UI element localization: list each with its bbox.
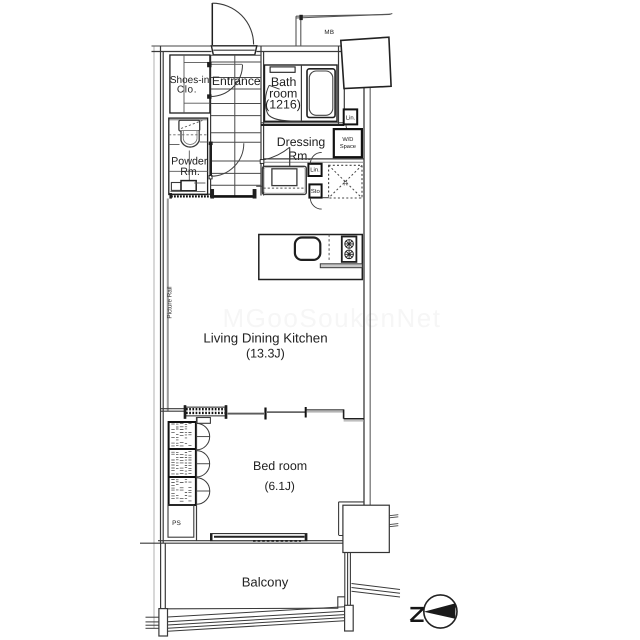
svg-text:Balcony: Balcony	[242, 575, 289, 590]
svg-text:Entrance: Entrance	[212, 74, 261, 88]
svg-text:Lin.: Lin.	[310, 167, 320, 174]
svg-text:(1216): (1216)	[265, 98, 301, 112]
svg-text:(6.1J): (6.1J)	[264, 479, 294, 493]
svg-text:MGooSoukenNet: MGooSoukenNet	[223, 303, 442, 333]
svg-text:(13.3J): (13.3J)	[246, 347, 285, 361]
svg-text:Space: Space	[340, 144, 356, 150]
svg-text:Sto: Sto	[311, 188, 321, 195]
svg-text:R: R	[343, 180, 348, 187]
svg-text:PS: PS	[172, 520, 181, 527]
svg-text:MB: MB	[324, 29, 334, 36]
svg-text:W/D: W/D	[342, 136, 353, 143]
svg-text:Clo.: Clo.	[177, 85, 197, 96]
svg-text:Rm.: Rm.	[180, 166, 200, 178]
svg-text:Lin.: Lin.	[346, 114, 356, 121]
svg-text:Living Dining Kitchen: Living Dining Kitchen	[203, 331, 327, 346]
svg-text:Dressing: Dressing	[277, 135, 326, 149]
svg-text:Bed room: Bed room	[253, 459, 307, 473]
svg-text:Picture Rail: Picture Rail	[167, 286, 174, 318]
svg-text:Rm.: Rm.	[288, 149, 311, 163]
